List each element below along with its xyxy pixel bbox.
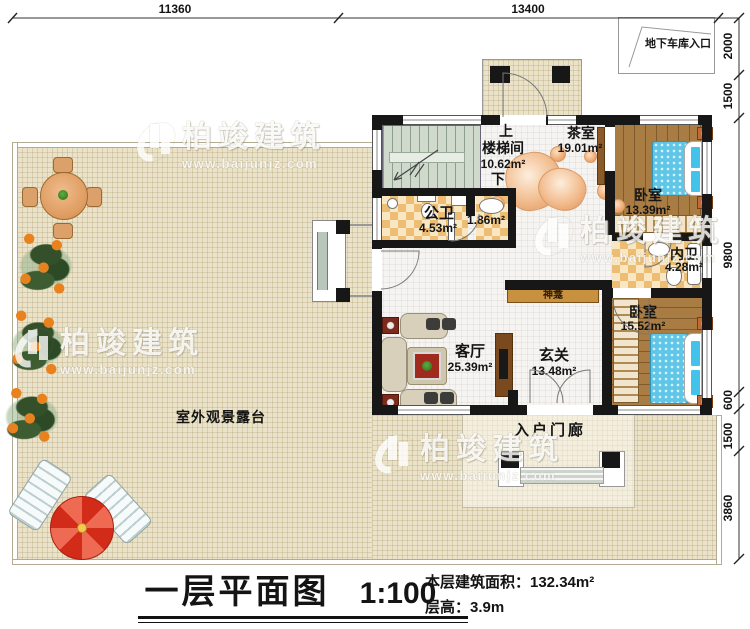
bay-window-glass <box>317 232 328 290</box>
sofa-icon <box>381 337 407 392</box>
wall-living-foyer-stub <box>508 390 518 406</box>
foyer-area: 13.48m² <box>532 365 577 378</box>
wall-bath-right <box>508 188 516 248</box>
tea-room-area: 19.01m² <box>558 142 603 155</box>
door-gap-ensuite <box>643 233 673 241</box>
window-right-bedroom-bottom <box>702 330 712 398</box>
window-top-tea <box>548 115 576 125</box>
sofa-icon <box>400 313 448 339</box>
bedroom-top-area: 13.39m² <box>626 204 671 217</box>
pillow-icon <box>690 340 701 367</box>
sofa-cushion-icon <box>440 392 454 404</box>
door-gap-bedroom-top <box>605 127 615 171</box>
floor-height-text: 层高：3.9m <box>425 600 504 617</box>
wall-foyer-bedroom2 <box>602 296 612 415</box>
title-underline <box>138 616 468 619</box>
shrine-label: 神龛 <box>543 290 563 301</box>
tea-room-label: 茶室 <box>567 126 595 141</box>
pillow-icon <box>690 369 701 396</box>
door-gap-bedroom-bottom <box>613 288 651 298</box>
window-right-ensuite <box>702 246 712 278</box>
title-underline-thin <box>138 622 468 623</box>
entry-porch-column <box>501 452 519 468</box>
dim-right-600: 600 <box>721 390 735 410</box>
orange-tree-icon <box>4 382 60 452</box>
foyer-label: 玄关 <box>539 348 569 365</box>
stair-up-label: 上 <box>499 124 513 139</box>
bedroom-top-label: 卧室 <box>634 188 662 203</box>
wash-area-area: 1.86m² <box>467 214 505 227</box>
window-top-left <box>403 115 481 125</box>
bay-window-post <box>336 288 350 302</box>
dim-right-1500a: 1500 <box>721 83 735 110</box>
stair-down-label: 下 <box>491 172 505 187</box>
wall-stair-bath <box>372 188 516 196</box>
pillow-icon <box>690 146 701 169</box>
window-top-bedroom <box>640 115 698 125</box>
umbrella-hub-icon <box>77 523 87 533</box>
window-bottom-bedroom <box>618 405 700 415</box>
bay-window-post <box>336 220 350 234</box>
window-bottom-living <box>398 405 470 415</box>
back-porch-post <box>490 66 510 83</box>
tv-icon <box>499 349 508 379</box>
floor-area-text: 本层建筑面积：132.34m² <box>425 575 594 592</box>
sink-icon <box>648 242 670 257</box>
entry-porch-label: 入户门廊 <box>514 423 586 440</box>
door-gap-living <box>372 249 382 291</box>
window-left-stair <box>372 130 382 170</box>
shower-icon <box>387 198 398 209</box>
table-plant-icon <box>422 361 432 371</box>
wall-bath-bottom <box>372 240 516 248</box>
bedroom-bottom-area: 15.52m² <box>621 320 666 333</box>
dim-right-2000: 2000 <box>721 33 735 60</box>
stairwell-area: 10.62m² <box>481 158 526 171</box>
window-right-bedroom-top <box>702 142 712 194</box>
dim-top-left: 11360 <box>159 3 192 16</box>
sofa-cushion-icon <box>424 392 438 404</box>
pillow-icon <box>690 170 701 193</box>
sofa-cushion-icon <box>426 318 440 330</box>
window-left-bath <box>372 198 382 240</box>
terrace-label: 室外观景露台 <box>176 410 266 425</box>
stairwell-label: 楼梯间 <box>482 141 524 156</box>
living-room-area: 25.39m² <box>448 361 493 374</box>
public-bath-area: 4.53m² <box>419 222 457 235</box>
sofa-cushion-icon <box>442 318 456 330</box>
garage-entrance-label: 地下车库入口 <box>645 38 711 50</box>
plan-title: 一层平面图 <box>145 574 330 611</box>
table-plant-icon <box>58 190 68 200</box>
bed-icon <box>650 333 688 404</box>
wardrobe-icon <box>614 215 702 233</box>
patio-chair-icon <box>53 223 73 239</box>
orange-tree-icon <box>8 302 68 388</box>
dim-right-3860: 3860 <box>721 495 735 522</box>
toilet-tank-icon <box>417 195 436 202</box>
door-leaf-bedroom-top <box>597 127 605 185</box>
corner-table-icon <box>382 317 399 334</box>
patio-chair-icon <box>53 157 73 173</box>
dim-top-right: 13400 <box>511 3 544 16</box>
patio-chair-icon <box>86 187 102 207</box>
floor-plan-canvas: 地下车库入口 神龛 <box>0 0 750 629</box>
dim-right-9800: 9800 <box>721 242 735 269</box>
entry-porch-column <box>602 452 620 468</box>
entry-steps <box>520 467 604 484</box>
wall-shrine <box>505 280 612 290</box>
dim-right-1500b: 1500 <box>721 423 735 450</box>
patio-chair-icon <box>22 187 38 207</box>
terrace-border-bottom <box>12 559 722 565</box>
living-room-label: 客厅 <box>455 344 485 361</box>
sink-icon <box>479 198 504 214</box>
ensuite-area: 4.28m² <box>665 261 703 274</box>
stairwell-landing <box>389 152 465 163</box>
door-gap-foyer <box>527 405 593 415</box>
terrace-border-top <box>12 142 378 148</box>
back-porch-post <box>552 66 570 83</box>
shrine-cabinet: 神龛 <box>507 288 599 303</box>
